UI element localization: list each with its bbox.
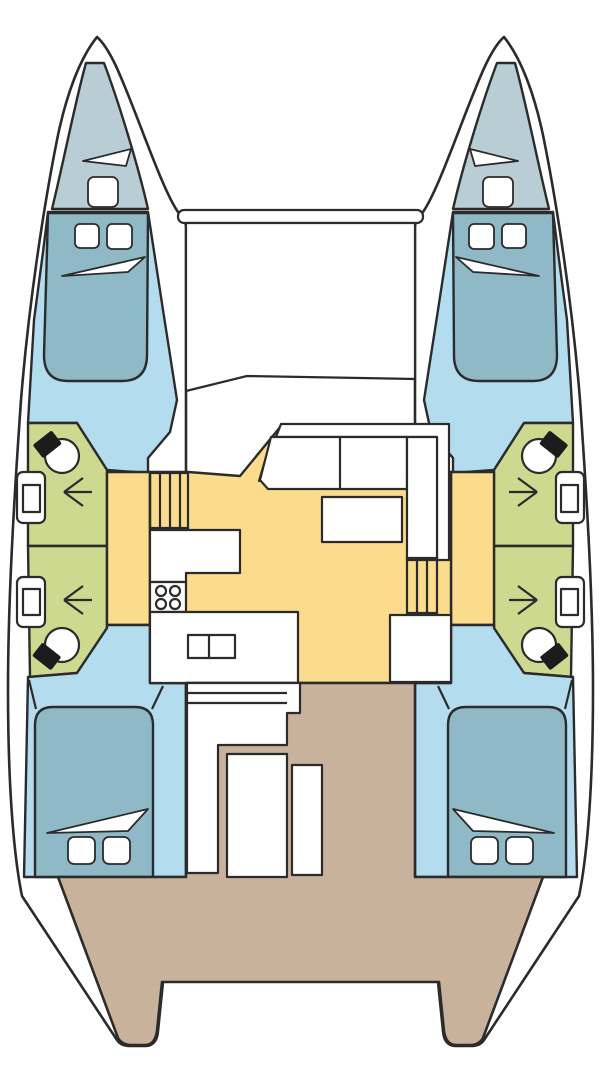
aft-pillow-icon (103, 837, 130, 864)
hull-corridor (107, 472, 150, 625)
saloon-table (322, 497, 402, 542)
settee-seat (260, 437, 407, 489)
forward-pillow-icon (107, 224, 132, 249)
sink-basin-icon (23, 589, 40, 615)
forepeak-hatch-icon (88, 177, 118, 207)
catamaran-floor-plan (0, 0, 601, 1080)
starboard-stair-landing (390, 615, 451, 682)
settee-side-seat (407, 437, 437, 560)
aft-pillow-icon (68, 837, 95, 864)
front-crossbeam (178, 210, 423, 223)
trampoline (186, 223, 415, 391)
cockpit-table (227, 754, 287, 877)
cockpit-bench (292, 765, 322, 875)
galley-sink-icon (188, 635, 235, 658)
forward-pillow-icon (75, 224, 99, 248)
stove (150, 582, 186, 612)
sink-basin-icon (23, 485, 40, 512)
